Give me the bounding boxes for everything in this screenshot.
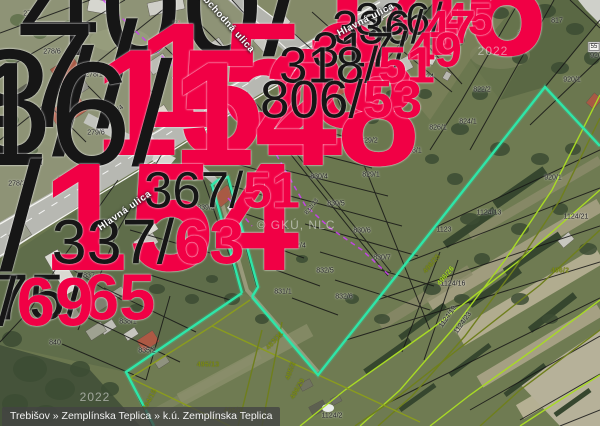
field-parcel-label: 496/2 <box>551 268 570 275</box>
imagery-watermark: © GKÚ, NLC <box>257 219 336 231</box>
parcel-number-label: 840 <box>49 340 61 347</box>
house-number-part: 65 <box>83 261 155 334</box>
building-number-label: 806/53 <box>260 74 422 127</box>
map-canvas[interactable]: 278/5278/6278/180/680/880/9822/182182081… <box>0 0 600 426</box>
house-number-part: 51 <box>243 162 300 219</box>
parcel-number-label: 920/1 <box>563 77 581 84</box>
parcel-part: 76/ <box>0 264 17 341</box>
parcel-number-label: 817 <box>551 18 563 25</box>
map-sign-label: 55 <box>589 43 600 51</box>
imagery-watermark: 2022 <box>80 391 111 403</box>
parcel-number-label: 824/1 <box>459 119 477 126</box>
parcel-number-label: 920/1 <box>544 175 562 182</box>
building-number-label: 367/51 <box>144 165 300 216</box>
field-parcel-label: 485/2 <box>285 361 298 381</box>
parcel-number-label: 826/1 <box>429 125 447 132</box>
breadcrumb-text: Trebišov » Zemplínska Teplica » k.ú. Zem… <box>10 410 272 422</box>
parcel-part: 806/ <box>260 71 363 130</box>
field-parcel-label: 496/29 <box>289 377 306 400</box>
parcel-number-label: 1124/19 <box>438 305 458 329</box>
house-number-part: 69 <box>17 264 94 341</box>
parcel-number-label: 1123 <box>436 227 451 234</box>
parcel-number-label: 830/5 <box>327 201 345 208</box>
parcel-number-label: 830/7 <box>373 255 391 262</box>
field-parcel-label: 483/11 <box>265 330 285 351</box>
parcel-number-label: 1124/13 <box>477 210 502 217</box>
field-parcel-label: 496/25 <box>422 253 442 275</box>
parcel-number-label: 920 <box>590 53 600 60</box>
house-number-part: 53 <box>363 71 422 130</box>
building-number-label: 76/69 <box>0 268 93 337</box>
parcel-number-label: 832/5 <box>316 268 334 275</box>
parcel-number-label: 835/2 <box>138 348 156 355</box>
imagery-watermark: 2022 <box>478 45 509 57</box>
parcel-number-label: 830/6 <box>353 228 371 235</box>
parcel-part: 367/ <box>144 162 243 219</box>
breadcrumb: Trebišov » Zemplínska Teplica » k.ú. Zem… <box>2 407 280 426</box>
parcel-number-label: 1124/23 <box>453 311 473 335</box>
field-parcel-label: 495/13 <box>197 362 220 369</box>
map-labels-layer: 278/5278/6278/180/680/880/9822/182182081… <box>0 0 600 426</box>
parcel-number-label: 822/2 <box>473 87 491 94</box>
parcel-number-label: 832/6 <box>335 294 353 301</box>
parcel-number-label: 832/23 <box>304 198 320 216</box>
parcel-number-label: 1124/2 <box>322 413 343 420</box>
parcel-number-label: 1124/21 <box>564 214 589 221</box>
